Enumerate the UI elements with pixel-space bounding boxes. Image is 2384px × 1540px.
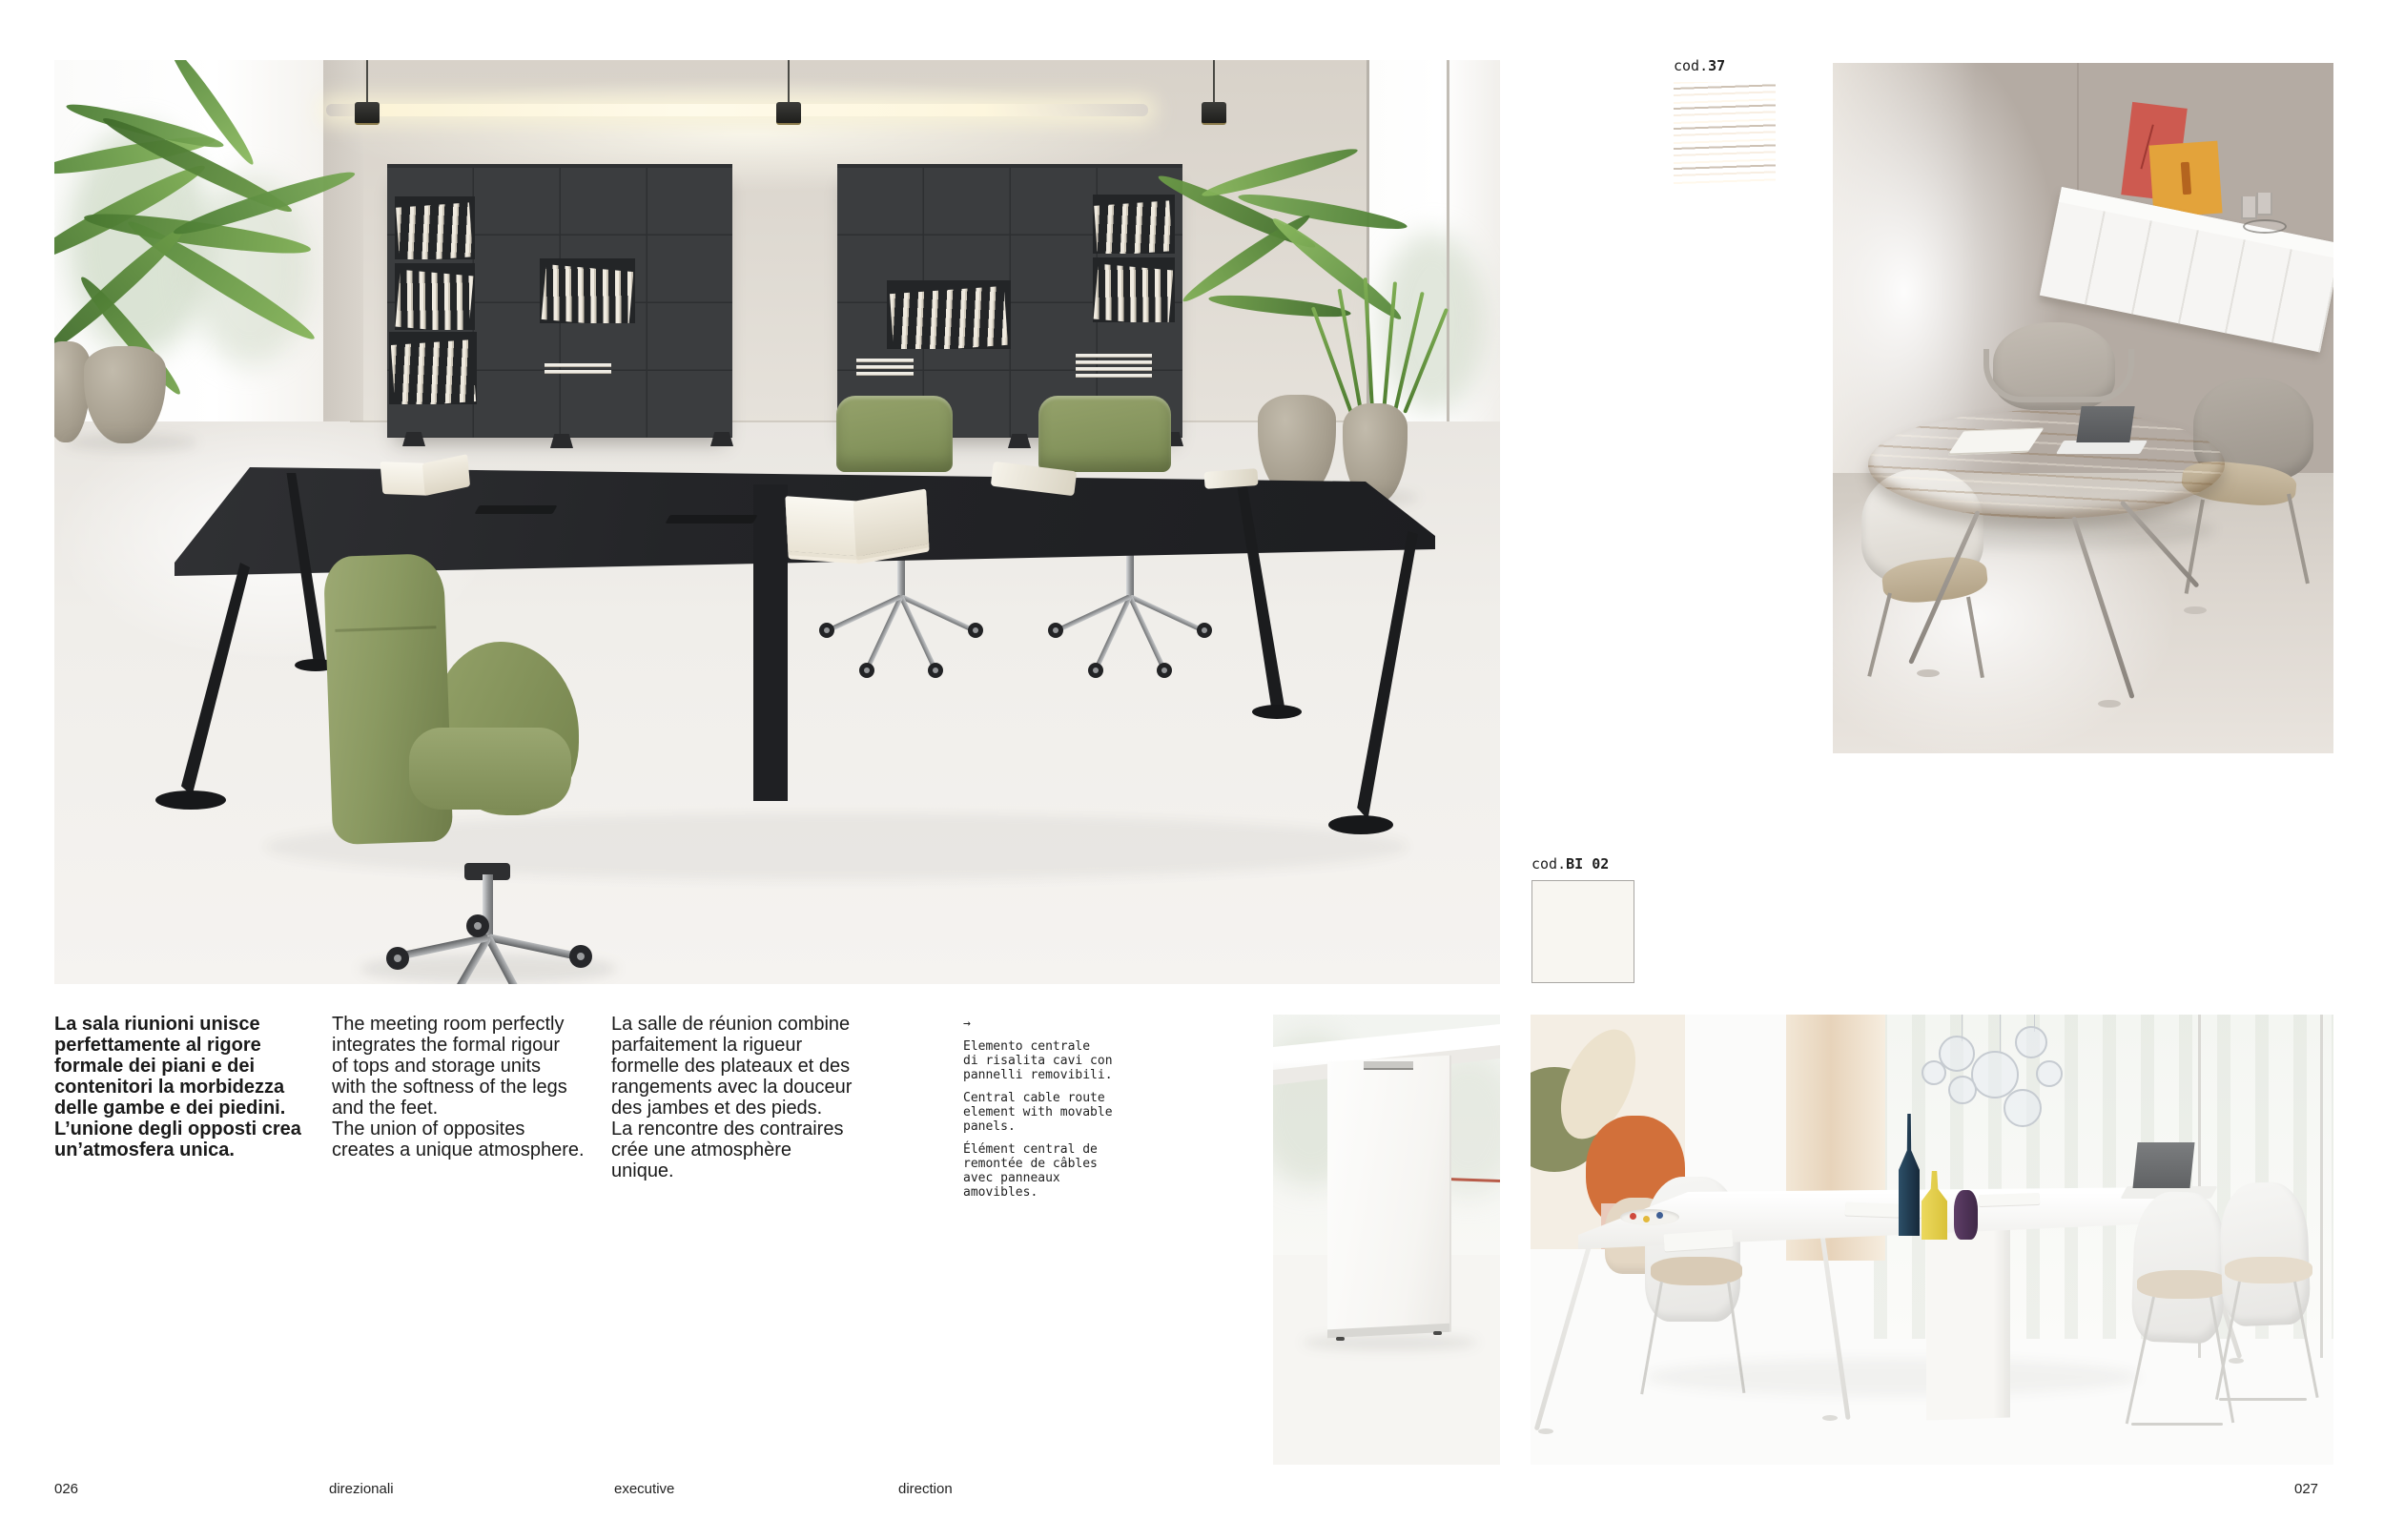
bookcase-compartment — [1093, 257, 1175, 322]
panel-foot — [1336, 1337, 1345, 1341]
cable-slot — [665, 515, 757, 524]
panel-bracket — [1364, 1061, 1413, 1070]
table-shadow — [1645, 1358, 2141, 1396]
intro-french: La salle de réunion combine parfaitement… — [611, 1014, 907, 1181]
bookcase-compartment — [395, 263, 475, 330]
table-foot — [2098, 700, 2121, 708]
table-foot — [1252, 705, 1302, 719]
footer-label-english: executive — [614, 1481, 674, 1497]
table-foot — [2229, 1358, 2244, 1364]
arrow-icon: → — [963, 1016, 1202, 1031]
photo-meeting-room — [54, 60, 1500, 984]
table-foot — [1822, 1415, 1838, 1421]
panel-foot — [1433, 1331, 1442, 1335]
table-leg — [1534, 1235, 1594, 1430]
bookcase-compartment — [395, 196, 475, 259]
book-stack — [856, 359, 914, 376]
laptop — [2056, 441, 2148, 454]
bookcase-compartment — [389, 332, 477, 404]
wood-finish-swatch — [1674, 82, 1776, 184]
bookcase-compartment — [887, 280, 1011, 349]
photo-round-table — [1833, 63, 2333, 753]
tech-note-english: Central cable route element with movable… — [963, 1091, 1202, 1134]
intro-english: The meeting room perfectly integrates th… — [332, 1014, 627, 1160]
bowl — [2243, 219, 2287, 234]
table-center-support — [753, 484, 788, 801]
laptop-screen — [2076, 406, 2134, 442]
table-foot — [2184, 606, 2207, 614]
plate-item — [1643, 1216, 1650, 1222]
wall-corner — [2077, 63, 2079, 196]
tech-note-italian: Elemento centrale di risalita cavi con p… — [963, 1039, 1202, 1082]
swatch-label-white: cod.BI 02 — [1531, 855, 1609, 873]
tech-note-french: Élément central de remontée de câbles av… — [963, 1142, 1202, 1200]
window-mullion — [1447, 60, 1449, 470]
table-foot — [1917, 669, 1940, 677]
book-stack — [1076, 354, 1152, 379]
papers — [1979, 1193, 2040, 1206]
meeting-chair-back — [836, 396, 953, 472]
catalog-spread: cod.37 cod.BI 02 — [0, 0, 2384, 1540]
tech-note: → Elemento centrale di risalita cavi con… — [963, 1016, 1202, 1208]
white-finish-swatch — [1531, 880, 1634, 983]
pendant-cord — [366, 60, 368, 104]
cable-route-panel — [1926, 1228, 2010, 1420]
swatch-label-wood: cod.37 — [1674, 57, 1725, 74]
linear-light — [326, 104, 1148, 116]
footer-label-italian: direzionali — [329, 1481, 394, 1497]
pendant-lamp — [1202, 102, 1226, 125]
page-number-right: 027 — [2294, 1481, 2318, 1497]
window-mullion — [2320, 1015, 2323, 1358]
pendant-cord — [1213, 60, 1215, 104]
tree-blur — [1380, 232, 1485, 413]
bottle-purple — [1954, 1190, 1978, 1240]
cable-slot — [474, 505, 557, 514]
laptop-screen — [2132, 1142, 2194, 1188]
round-table — [1868, 410, 2225, 519]
photo-cable-element — [1273, 1015, 1500, 1465]
bookcase-left — [387, 164, 732, 438]
pendant-cord — [788, 60, 790, 104]
pendant-lamp — [776, 102, 801, 125]
table-foot — [155, 791, 226, 810]
plate-item — [1630, 1213, 1636, 1220]
meeting-chair-back — [1038, 396, 1171, 472]
photo-white-meeting-table — [1531, 1015, 2333, 1465]
bookcase-compartment — [1093, 195, 1175, 254]
glass — [2241, 196, 2257, 219]
intro-italian: La sala riunioni unisce perfettamente al… — [54, 1014, 340, 1160]
book-stack — [545, 363, 611, 377]
glass — [2256, 193, 2272, 216]
plate-item — [1656, 1212, 1663, 1219]
open-book — [786, 493, 930, 556]
table-foot — [1328, 815, 1393, 834]
cable-route-panel — [1327, 1056, 1451, 1339]
table-foot — [1538, 1428, 1553, 1434]
pendant-lamp — [355, 102, 380, 125]
bookcase-compartment — [540, 258, 635, 323]
footer-label-french: direction — [898, 1481, 953, 1497]
page-number-left: 026 — [54, 1481, 78, 1497]
